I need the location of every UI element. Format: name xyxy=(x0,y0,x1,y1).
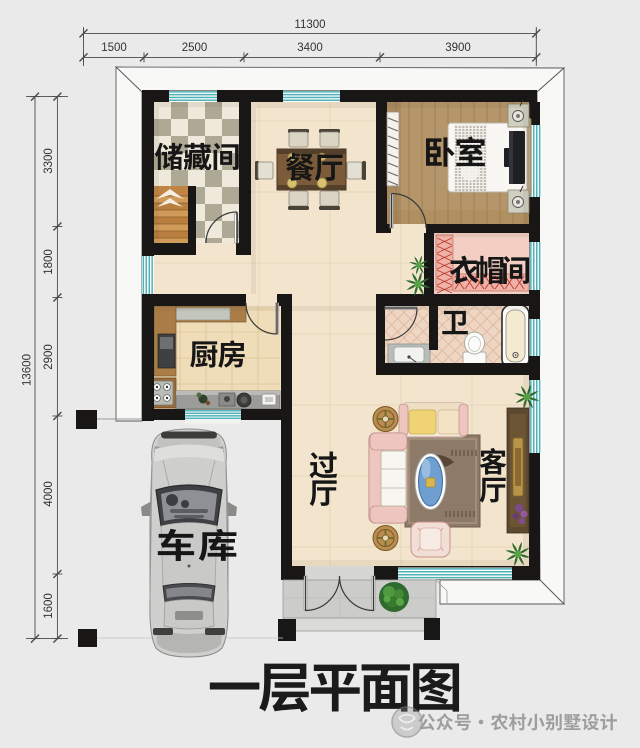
svg-text:3300: 3300 xyxy=(43,148,55,174)
svg-text:3400: 3400 xyxy=(297,42,323,54)
svg-text:2500: 2500 xyxy=(182,42,208,54)
svg-text:3900: 3900 xyxy=(445,42,471,54)
svg-text:2900: 2900 xyxy=(43,344,55,370)
svg-text:11300: 11300 xyxy=(294,19,325,31)
svg-text:13600: 13600 xyxy=(22,354,34,386)
svg-text:4000: 4000 xyxy=(43,481,55,507)
svg-text:1500: 1500 xyxy=(101,42,127,54)
svg-text:1600: 1600 xyxy=(43,593,55,619)
svg-text:1800: 1800 xyxy=(43,249,55,275)
